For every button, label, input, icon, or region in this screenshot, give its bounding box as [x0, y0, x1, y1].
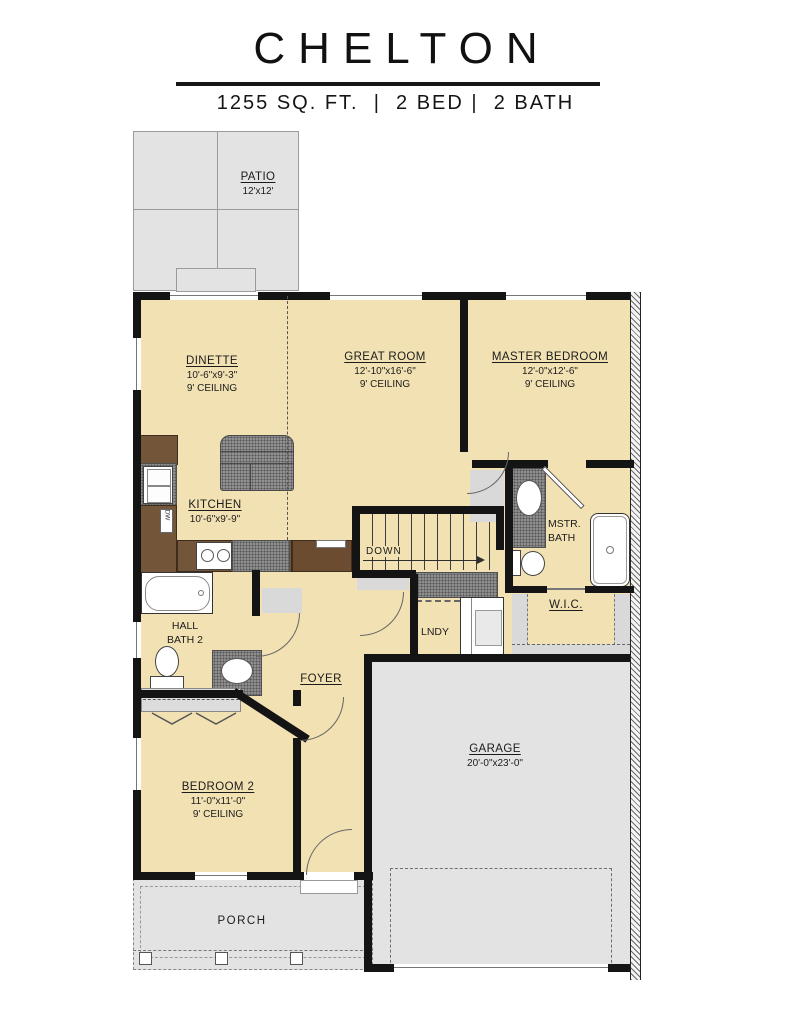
patio-divider-vertical — [217, 131, 218, 291]
wall-hallbath-bottom — [133, 690, 243, 698]
laundry-name: LNDY — [412, 626, 458, 640]
wall-masterbath-left — [505, 468, 513, 593]
garage-door-track — [390, 868, 612, 968]
porch-post-middle — [215, 952, 228, 965]
bedroom2-dims: 11'-0"x11'-0" — [158, 795, 278, 808]
wall-bedroom2-right — [293, 738, 301, 880]
wic-name: W.I.C. — [531, 598, 601, 613]
hallbath-toilet-bowl — [155, 646, 179, 677]
wic-label: W.I.C. — [531, 598, 601, 613]
wall-stairs-top — [352, 506, 504, 514]
shower-drain — [606, 546, 614, 554]
bifold-doors-icon — [150, 712, 240, 726]
title-divider — [176, 82, 600, 86]
wall-laundry-left — [410, 574, 418, 662]
greatroom-dims: 12'-10"x16'-6" — [325, 365, 445, 378]
patio-dims: 12'x12' — [223, 185, 293, 198]
patio-slider-door — [170, 292, 258, 300]
master-dims: 12'-0"x12'-6" — [480, 365, 620, 378]
linen-closet — [262, 588, 302, 613]
wic-shelf-right — [614, 594, 630, 650]
master-window — [506, 292, 586, 300]
greatroom-window — [330, 292, 422, 300]
wall-stairs-left — [352, 506, 360, 578]
porch-post-left — [139, 952, 152, 965]
washer-panel-line — [471, 598, 472, 656]
masterbath-label: MSTR. BATH — [548, 518, 592, 545]
hallbath-sink — [221, 658, 253, 684]
kitchen-peninsula-vent — [316, 540, 346, 548]
master-label: MASTER BEDROOM 12'-0"x12'-6" 9' CEILING — [480, 350, 620, 391]
bedroom2-label: BEDROOM 2 11'-0"x11'-0" 9' CEILING — [158, 780, 278, 821]
garage-label: GARAGE 20'-0"x23'-0" — [425, 742, 565, 770]
dinette-window — [133, 338, 141, 390]
stove-burner-right — [217, 549, 230, 562]
patio-label: PATIO 12'x12' — [223, 170, 293, 198]
sofa-cushion-line — [221, 463, 293, 464]
wall-wic-top-b — [585, 586, 634, 593]
kitchen-dims: 10'-6"x9'-9" — [160, 513, 270, 526]
hallbath-label: HALL BATH 2 — [140, 620, 230, 647]
patio-divider-horizontal — [133, 209, 299, 210]
bedroom2-ceiling: 9' CEILING — [158, 808, 278, 821]
stairs-arrow-line — [363, 560, 478, 561]
wall-wic-top-a — [505, 586, 547, 593]
wic-shelf-bottom — [512, 644, 630, 654]
patio-name: PATIO — [223, 170, 293, 185]
dinette-label: DINETTE 10'-6"x9'-3" 9' CEILING — [152, 354, 272, 395]
hallbath-name-1: HALL — [140, 620, 230, 634]
masterbath-name-1: MSTR. — [548, 518, 592, 532]
foyer-name: FOYER — [292, 672, 350, 687]
masterbath-name-2: BATH — [548, 532, 592, 546]
masterbath-sink — [516, 480, 542, 516]
greatroom-label: GREAT ROOM 12'-10"x16'-6" 9' CEILING — [325, 350, 445, 391]
stairs-down-label: DOWN — [364, 546, 404, 557]
wall-master-south-b — [586, 460, 634, 468]
washer-drum — [475, 610, 502, 646]
bedroom2-side-window — [133, 738, 141, 790]
tub-drain — [198, 590, 204, 596]
sofa-cushion-divider — [250, 463, 251, 490]
hallbath-name-2: BATH 2 — [140, 634, 230, 648]
wall-stairs-bottom — [352, 570, 416, 578]
dinette-greatroom-divider — [287, 296, 288, 540]
closet-rod-line — [143, 699, 239, 700]
porch-name: PORCH — [192, 914, 292, 929]
plan-title: CHELTON — [0, 24, 791, 74]
master-ceiling: 9' CEILING — [480, 378, 620, 391]
wall-garage-top — [364, 654, 630, 662]
dinette-ceiling: 9' CEILING — [152, 382, 272, 395]
kitchen-label: KITCHEN 10'-6"x9'-9" — [160, 498, 270, 526]
stairs-arrow-head — [477, 556, 485, 564]
foyer-label: FOYER — [292, 672, 350, 687]
kitchen-name: KITCHEN — [160, 498, 270, 513]
sink-basin-top — [147, 469, 171, 486]
master-name: MASTER BEDROOM — [480, 350, 620, 365]
dinette-name: DINETTE — [152, 354, 272, 369]
garage-door-opening — [394, 964, 608, 972]
masterbath-toilet-bowl — [521, 551, 545, 576]
kitchen-counter-speckled — [232, 540, 290, 572]
bedroom2-name: BEDROOM 2 — [158, 780, 278, 795]
greatroom-ceiling: 9' CEILING — [325, 378, 445, 391]
kitchen-counter-corner — [140, 435, 178, 465]
floorplan-page: CHELTON 1255 SQ. FT. | 2 BED | 2 BATH DW… — [0, 0, 791, 1024]
front-door-step — [300, 880, 358, 894]
bedroom2-front-window — [195, 872, 247, 880]
patio-surface — [133, 131, 299, 291]
garage-name: GARAGE — [425, 742, 565, 757]
dinette-dims: 10'-6"x9'-3" — [152, 369, 272, 382]
garage-dims: 20'-0"x23'-0" — [425, 757, 565, 770]
wall-right-hatched — [630, 292, 641, 980]
wic-opening-line — [547, 588, 585, 590]
stove-burner-left — [201, 549, 214, 562]
wall-garage-left — [364, 660, 372, 972]
understairs-closet-carpet — [416, 572, 498, 598]
sofa-back-line — [221, 451, 293, 452]
laundry-label: LNDY — [412, 626, 458, 640]
porch-label: PORCH — [192, 914, 292, 929]
wall-tub-right — [252, 570, 260, 616]
wic-shelf-left — [512, 594, 528, 650]
wall-stairs-right — [496, 506, 504, 550]
masterbath-toilet-tank — [512, 550, 521, 576]
plan-specs: 1255 SQ. FT. | 2 BED | 2 BATH — [0, 92, 791, 115]
patio-step — [176, 268, 256, 292]
greatroom-name: GREAT ROOM — [325, 350, 445, 365]
wall-greatroom-master — [460, 292, 468, 452]
porch-edge-line — [133, 950, 373, 951]
porch-post-right — [290, 952, 303, 965]
